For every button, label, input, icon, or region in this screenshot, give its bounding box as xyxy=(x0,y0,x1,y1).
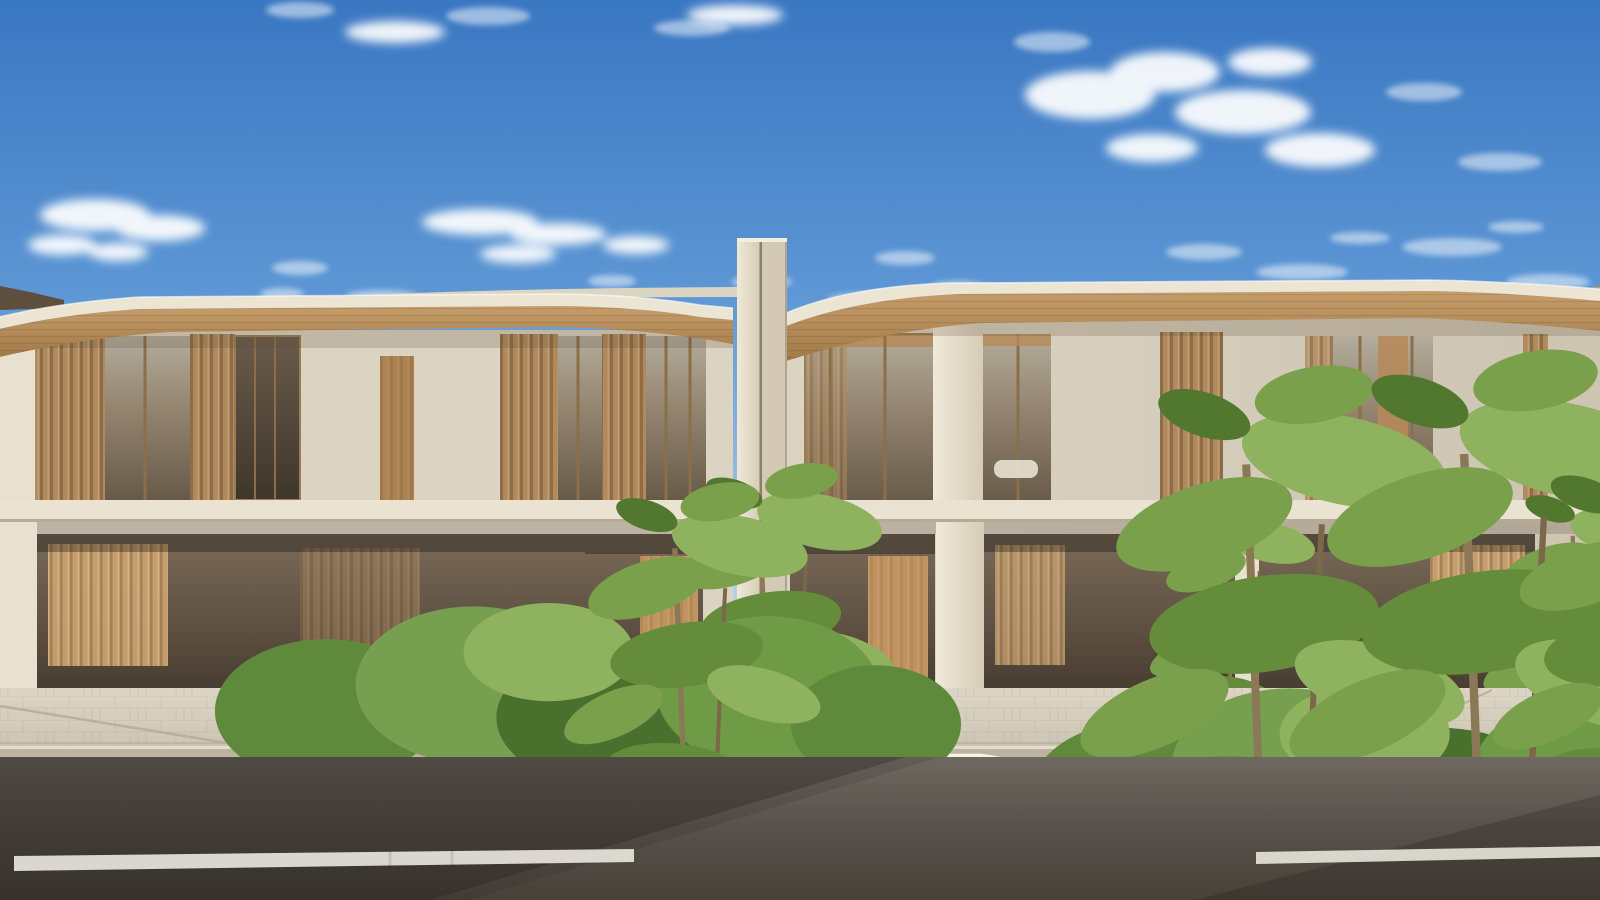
architectural-render-scene xyxy=(0,0,1600,900)
glass-panel xyxy=(558,336,602,500)
glass-panel xyxy=(105,336,190,500)
concrete-column xyxy=(936,522,984,692)
glass-panel xyxy=(646,336,706,500)
concrete-column xyxy=(933,308,983,506)
glass-panel xyxy=(235,336,300,500)
building-left xyxy=(0,287,738,694)
wood-slat-panel xyxy=(35,334,105,500)
wood-slat-panel xyxy=(500,334,558,500)
wood-slat-panel xyxy=(602,334,646,500)
interior-sofa xyxy=(994,460,1038,478)
road xyxy=(0,757,1600,900)
wood-slat-panel xyxy=(190,334,235,500)
